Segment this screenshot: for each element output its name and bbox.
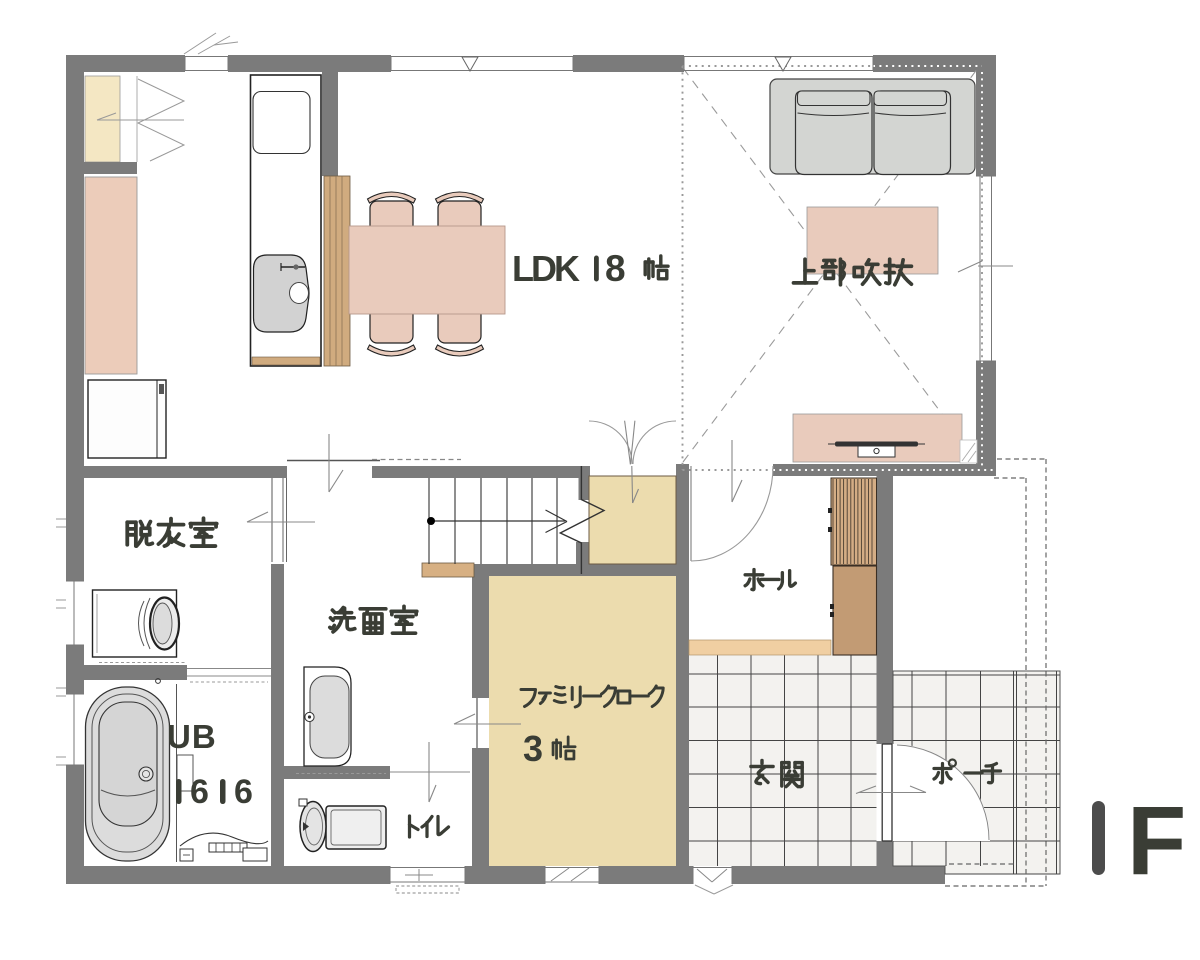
svg-text:8: 8 xyxy=(605,248,626,289)
svg-text:6: 6 xyxy=(234,773,253,811)
svg-text:UB: UB xyxy=(167,718,217,755)
svg-text:LDK: LDK xyxy=(512,248,580,289)
svg-text:F: F xyxy=(1127,786,1186,895)
svg-text:3: 3 xyxy=(523,728,543,769)
svg-text:6: 6 xyxy=(190,773,209,811)
